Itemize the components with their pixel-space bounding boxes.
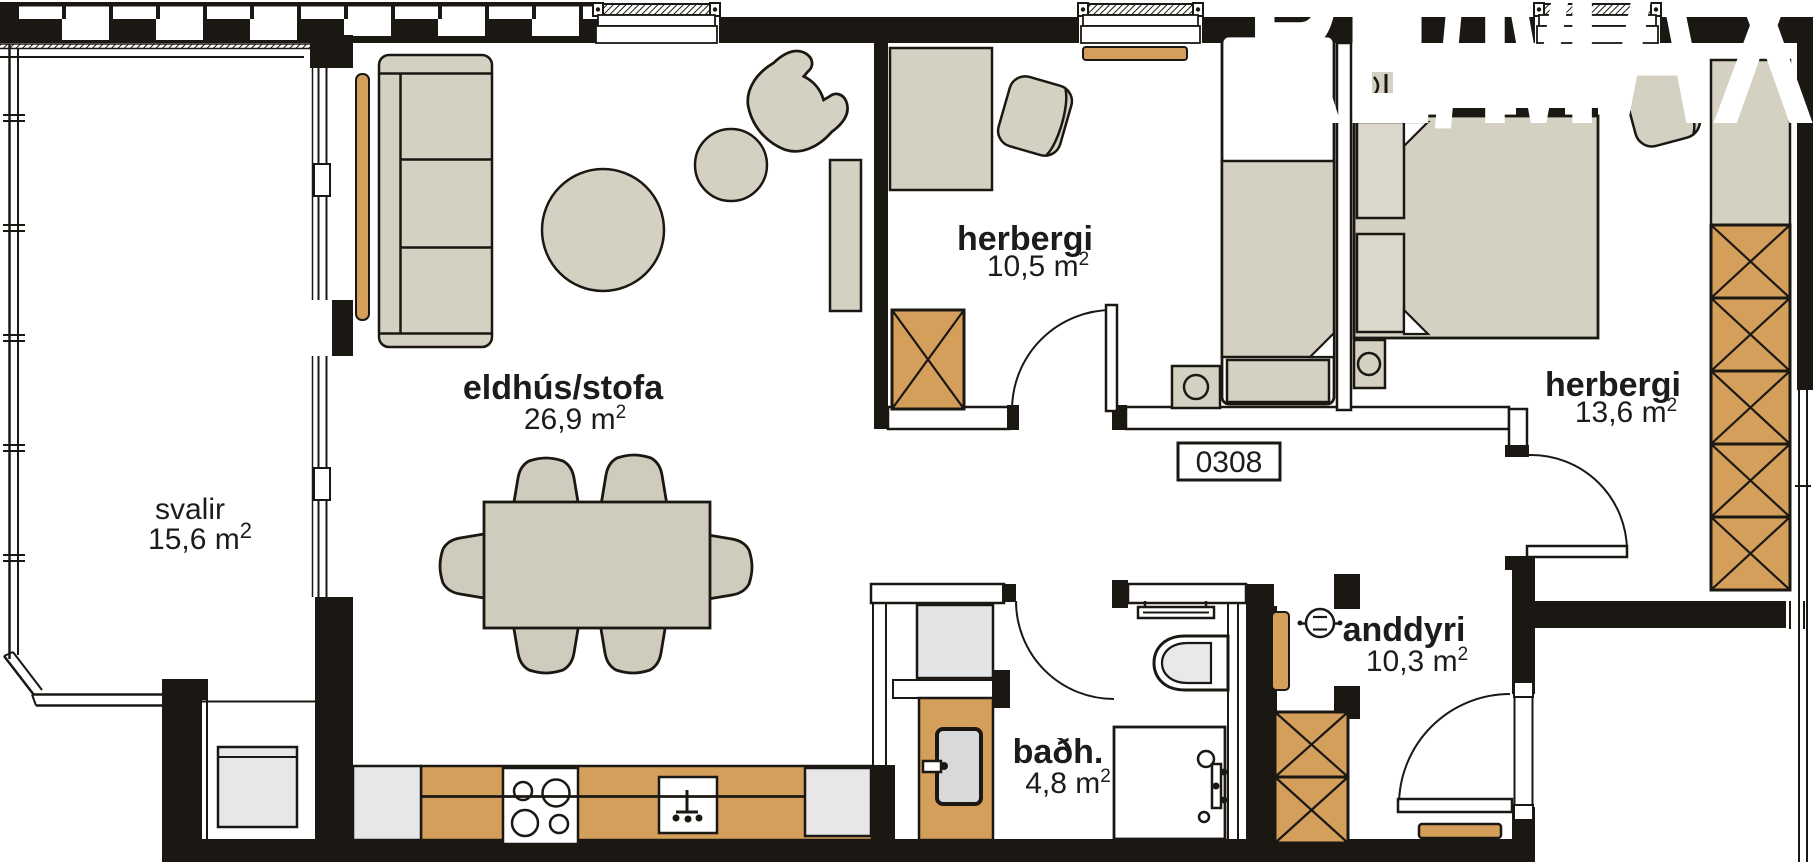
svg-text:10,3 m2: 10,3 m2 bbox=[1366, 644, 1468, 678]
svg-text:0308: 0308 bbox=[1196, 446, 1263, 479]
svg-text:baðh.: baðh. bbox=[1013, 733, 1104, 771]
svg-text:eldhús/stofa: eldhús/stofa bbox=[463, 369, 664, 407]
svg-text:RE/: RE/ bbox=[1246, 0, 1471, 181]
svg-text:svalir: svalir bbox=[155, 493, 225, 526]
svg-text:13,6 m2: 13,6 m2 bbox=[1575, 395, 1677, 429]
svg-text:26,9 m2: 26,9 m2 bbox=[524, 402, 626, 436]
svg-text:10,5 m2: 10,5 m2 bbox=[987, 249, 1089, 283]
svg-text:15,6 m2: 15,6 m2 bbox=[148, 518, 252, 556]
svg-text:anddyri: anddyri bbox=[1343, 611, 1466, 649]
svg-text:MAX: MAX bbox=[1475, 0, 1813, 181]
svg-text:4,8 m2: 4,8 m2 bbox=[1025, 766, 1111, 800]
